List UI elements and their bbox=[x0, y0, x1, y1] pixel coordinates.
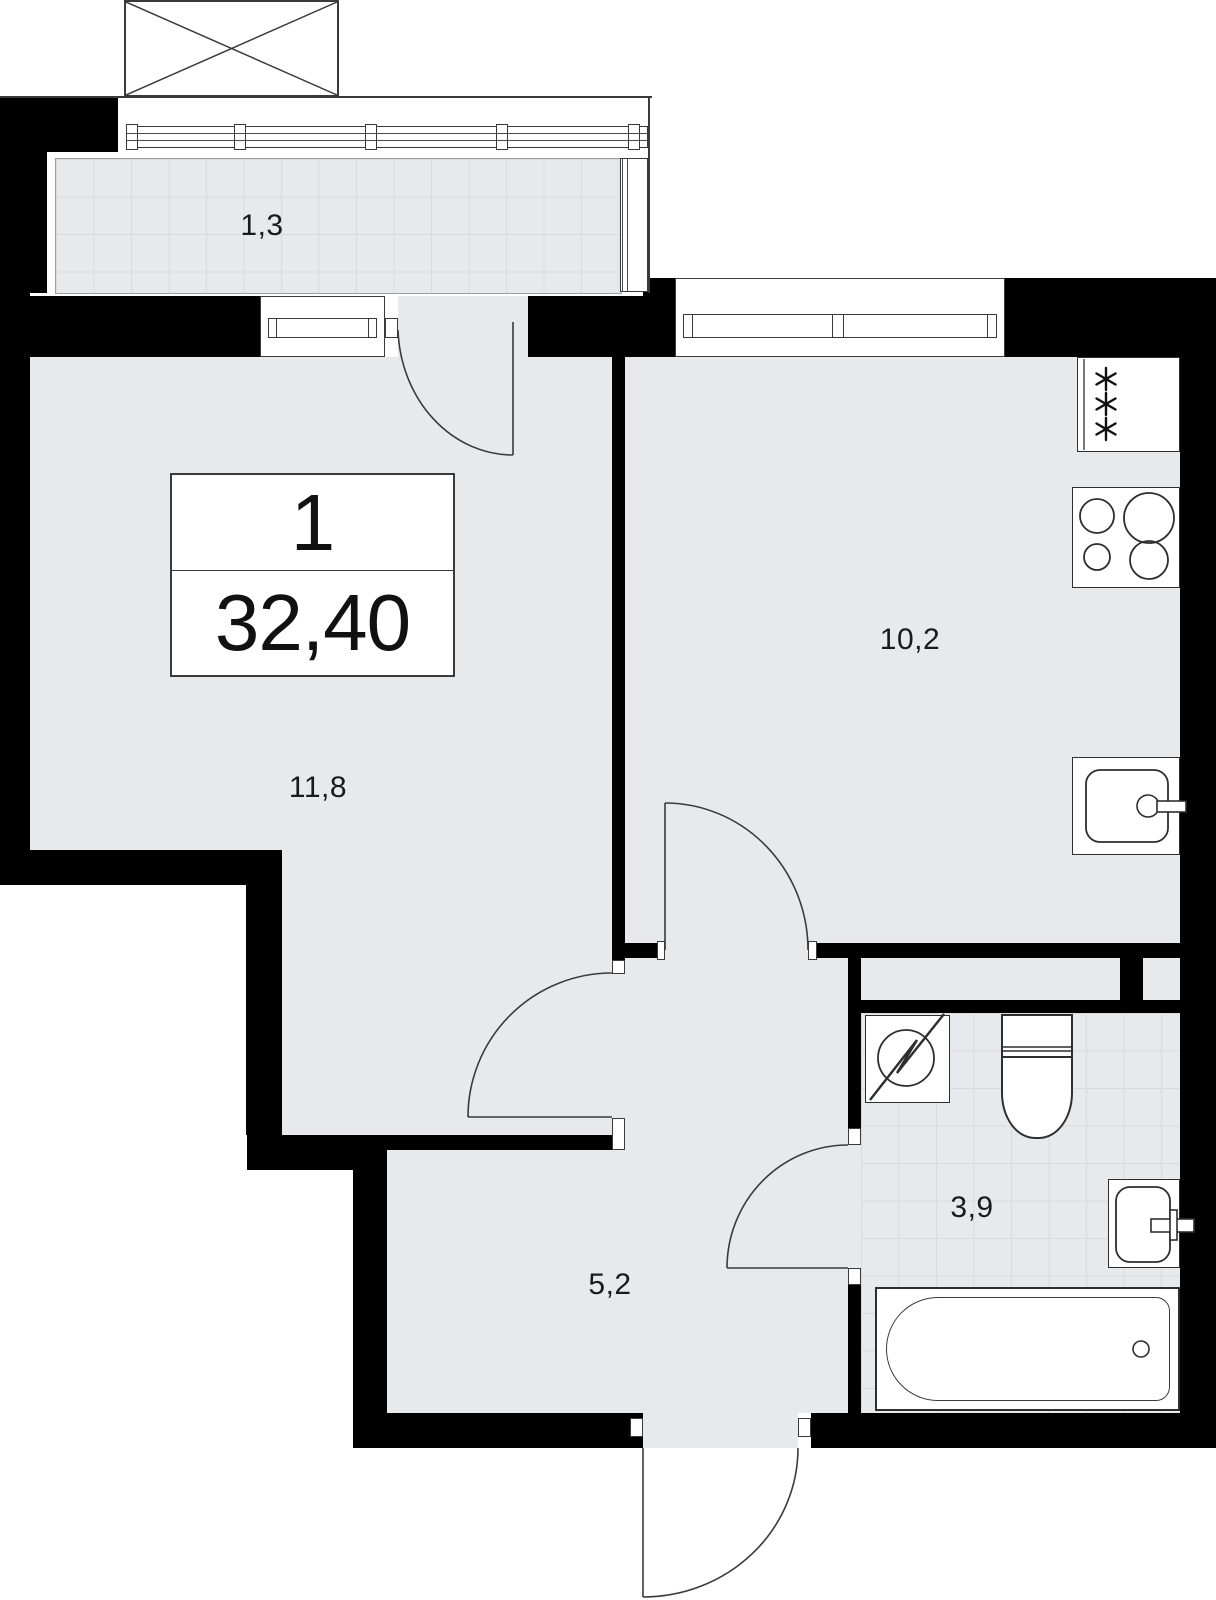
balcony-door-opening bbox=[398, 296, 528, 357]
duct-niche-left bbox=[861, 958, 1120, 1000]
kitchen-door-opening bbox=[665, 943, 808, 958]
balcony-railing bbox=[126, 126, 648, 148]
wall-step-horizontal bbox=[0, 850, 282, 885]
railing-post bbox=[496, 124, 508, 150]
balcony-door-jamb bbox=[385, 318, 398, 338]
overhang-crossed-box bbox=[124, 0, 339, 97]
bathroom-sink bbox=[1108, 1179, 1180, 1268]
wall-hall-corner-block bbox=[247, 1150, 353, 1170]
living-room-floor-lower bbox=[282, 885, 612, 1135]
balcony-outer-edge-right bbox=[648, 96, 650, 293]
toilet-bowl bbox=[1001, 1056, 1073, 1139]
railing-post bbox=[628, 124, 640, 150]
unit-total-area: 32,40 bbox=[172, 571, 453, 675]
balcony-area-label: 1,3 bbox=[240, 209, 283, 243]
wall-right bbox=[1180, 278, 1216, 1448]
wall-step-vertical bbox=[246, 885, 282, 1135]
wall-bottom-left bbox=[353, 1413, 643, 1448]
wall-niche-divider bbox=[1120, 958, 1143, 1000]
wall-hall-top bbox=[247, 1135, 612, 1150]
kitchen-door-jamb-left bbox=[657, 941, 665, 960]
fridge bbox=[1077, 357, 1180, 452]
wall-living-top-left bbox=[0, 296, 260, 357]
toilet-tank bbox=[1001, 1014, 1073, 1058]
bathtub-inner bbox=[886, 1297, 1170, 1401]
duct-niche-right bbox=[1143, 958, 1180, 1000]
wall-bottom-right bbox=[811, 1413, 1216, 1448]
wall-hall-bath-divider-lower bbox=[848, 1285, 861, 1413]
wall-kitchen-bottom-left bbox=[625, 943, 657, 958]
living-door-opening bbox=[612, 973, 625, 1118]
unit-rooms-count: 1 bbox=[172, 475, 453, 571]
kitchen-window-mullion bbox=[832, 314, 844, 338]
kitchen-sink bbox=[1072, 757, 1180, 855]
wall-bathroom-top bbox=[861, 1000, 1180, 1013]
railing-post bbox=[234, 124, 246, 150]
wall-left bbox=[0, 293, 30, 850]
kitchen-window-mullion bbox=[987, 314, 997, 338]
living-door-jamb-bottom bbox=[612, 1118, 625, 1150]
kitchen-area-label: 10,2 bbox=[880, 623, 940, 657]
wall-kitchen-bottom-right bbox=[817, 943, 1180, 958]
balcony-right-band bbox=[620, 158, 648, 292]
hall-area-label: 5,2 bbox=[588, 1268, 631, 1302]
entrance-door-jamb-right bbox=[798, 1418, 811, 1437]
entrance-door-swing bbox=[643, 1448, 798, 1597]
hall-upper-floor bbox=[625, 958, 848, 1150]
washing-machine bbox=[865, 1015, 950, 1103]
entrance-door-opening bbox=[643, 1413, 798, 1448]
bathroom-area-label: 3,9 bbox=[950, 1191, 993, 1225]
wall-hall-left bbox=[353, 1150, 387, 1413]
wall-living-kitchen-divider bbox=[612, 357, 625, 965]
floor-plan: 1,3 10,2 11,8 5,2 3,9 1 32,40 bbox=[0, 0, 1216, 1600]
wall-hall-bath-divider-upper bbox=[848, 958, 861, 1128]
balcony-window-mullion bbox=[368, 318, 377, 338]
bathroom-door-jamb-top bbox=[848, 1128, 861, 1145]
kitchen-door-jamb-right bbox=[808, 941, 817, 960]
bathroom-door-jamb-bottom bbox=[848, 1268, 861, 1285]
balcony-window-frame bbox=[268, 318, 377, 338]
kitchen-window-mullion bbox=[683, 314, 693, 338]
stove bbox=[1072, 487, 1180, 588]
wall-left-upper bbox=[0, 98, 47, 293]
entrance-door-jamb-left bbox=[630, 1418, 643, 1437]
railing-post bbox=[365, 124, 377, 150]
living-area-label: 11,8 bbox=[289, 771, 347, 805]
unit-info-box: 1 32,40 bbox=[170, 473, 455, 677]
living-door-jamb-top bbox=[612, 960, 625, 974]
balcony-window-mullion bbox=[268, 318, 277, 338]
bathroom-door-opening bbox=[848, 1145, 861, 1268]
railing-post bbox=[126, 124, 138, 150]
balcony-floor bbox=[55, 158, 622, 294]
